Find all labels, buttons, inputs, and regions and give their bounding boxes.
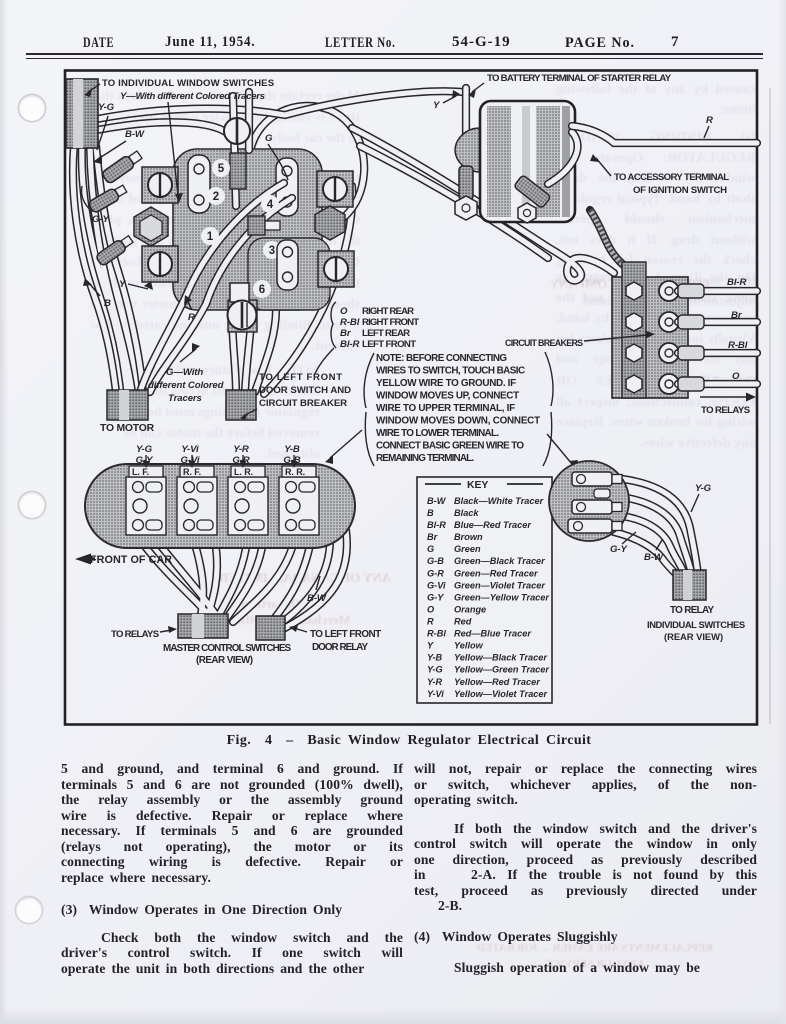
svg-text:G-R: G-R bbox=[232, 455, 249, 466]
svg-text:G-B: G-B bbox=[283, 455, 300, 466]
svg-text:R: R bbox=[706, 115, 713, 126]
svg-text:TO LEFT FRONT: TO LEFT FRONT bbox=[259, 372, 342, 383]
svg-text:G-Y: G-Y bbox=[92, 214, 110, 225]
svg-text:Br: Br bbox=[427, 532, 438, 542]
svg-text:TO BATTERY TERMINAL OF STARTER: TO BATTERY TERMINAL OF STARTER RELAY bbox=[487, 73, 672, 84]
svg-text:FRONT OF CAR: FRONT OF CAR bbox=[90, 554, 172, 566]
svg-text:Black—White Tracer: Black—White Tracer bbox=[454, 496, 544, 506]
svg-text:WIRE TO UPPER TERMINAL, IF: WIRE TO UPPER TERMINAL, IF bbox=[376, 403, 515, 414]
svg-text:G: G bbox=[427, 544, 434, 554]
svg-text:YELLOW WIRE TO GROUND. IF: YELLOW WIRE TO GROUND. IF bbox=[376, 378, 516, 389]
svg-text:L. F.: L. F. bbox=[132, 467, 149, 477]
svg-text:G-Y: G-Y bbox=[610, 544, 628, 555]
svg-text:Br: Br bbox=[340, 328, 352, 339]
svg-text:(REAR VIEW): (REAR VIEW) bbox=[196, 655, 253, 666]
svg-text:KEY: KEY bbox=[467, 479, 488, 491]
svg-text:INDIVIDUAL SWITCHES: INDIVIDUAL SWITCHES bbox=[647, 619, 745, 630]
svg-text:Y-B: Y-B bbox=[427, 653, 443, 663]
svg-text:B-W: B-W bbox=[644, 552, 664, 563]
svg-text:Green—Yellow Tracer: Green—Yellow Tracer bbox=[454, 592, 549, 602]
svg-text:G: G bbox=[265, 133, 273, 144]
svg-text:Green—Red Tracer: Green—Red Tracer bbox=[454, 568, 538, 578]
svg-text:Br: Br bbox=[731, 310, 743, 321]
svg-text:1: 1 bbox=[207, 231, 214, 243]
svg-text:Y-Vi: Y-Vi bbox=[427, 689, 444, 699]
svg-text:R-Bl: R-Bl bbox=[340, 317, 360, 328]
svg-text:(REAR VIEW): (REAR VIEW) bbox=[664, 631, 723, 642]
svg-text:DOOR SWITCH AND: DOOR SWITCH AND bbox=[259, 385, 351, 396]
svg-text:Green—Violet Tracer: Green—Violet Tracer bbox=[454, 580, 545, 590]
svg-text:Black: Black bbox=[454, 508, 479, 518]
svg-text:6: 6 bbox=[259, 284, 265, 296]
svg-text:4: 4 bbox=[267, 199, 274, 211]
svg-text:O: O bbox=[732, 371, 740, 382]
svg-text:3: 3 bbox=[269, 245, 275, 257]
svg-text:WINDOW MOVES DOWN, CONNECT: WINDOW MOVES DOWN, CONNECT bbox=[376, 416, 540, 427]
svg-text:L. R.: L. R. bbox=[234, 467, 253, 477]
svg-text:R: R bbox=[188, 312, 195, 323]
svg-text:R-Bl: R-Bl bbox=[728, 340, 748, 351]
svg-text:OF IGNITION SWITCH: OF IGNITION SWITCH bbox=[633, 185, 727, 196]
svg-text:Yellow: Yellow bbox=[454, 641, 484, 651]
svg-text:REMAINING TERMINAL.: REMAINING TERMINAL. bbox=[376, 453, 474, 464]
svg-text:Bl-R: Bl-R bbox=[727, 277, 746, 288]
svg-text:Tracers: Tracers bbox=[168, 393, 202, 404]
svg-text:TO RELAYS: TO RELAYS bbox=[111, 629, 160, 640]
svg-text:Y-R: Y-R bbox=[233, 444, 249, 455]
svg-text:R. R.: R. R. bbox=[285, 467, 305, 477]
svg-text:TO INDIVIDUAL WINDOW SWITCHES: TO INDIVIDUAL WINDOW SWITCHES bbox=[102, 78, 275, 89]
svg-text:Blue—Red Tracer: Blue—Red Tracer bbox=[454, 520, 531, 530]
svg-text:Red—Blue Tracer: Red—Blue Tracer bbox=[454, 629, 531, 639]
svg-text:NOTE: BEFORE CONNECTING: NOTE: BEFORE CONNECTING bbox=[376, 353, 507, 364]
svg-text:O: O bbox=[427, 605, 434, 615]
svg-text:Yellow—Violet Tracer: Yellow—Violet Tracer bbox=[454, 689, 548, 699]
svg-text:Y-G: Y-G bbox=[695, 483, 712, 494]
svg-text:CIRCUIT BREAKER: CIRCUIT BREAKER bbox=[259, 398, 347, 409]
svg-text:B-W: B-W bbox=[125, 129, 145, 140]
svg-text:LEFT FRONT: LEFT FRONT bbox=[362, 339, 416, 350]
svg-text:Y-G: Y-G bbox=[427, 665, 443, 675]
svg-text:WIRE TO LOWER TERMINAL.: WIRE TO LOWER TERMINAL. bbox=[376, 428, 499, 439]
svg-text:Y: Y bbox=[433, 100, 441, 111]
svg-text:5: 5 bbox=[218, 163, 225, 175]
svg-text:Y-G: Y-G bbox=[136, 444, 153, 455]
svg-text:2: 2 bbox=[213, 191, 219, 203]
svg-text:R-Bl: R-Bl bbox=[427, 629, 446, 639]
svg-text:TO MOTOR: TO MOTOR bbox=[100, 423, 155, 434]
svg-text:WIRES TO SWITCH, TOUCH BASIC: WIRES TO SWITCH, TOUCH BASIC bbox=[376, 366, 525, 377]
svg-text:Green: Green bbox=[454, 544, 481, 554]
svg-text:Yellow—Red Tracer: Yellow—Red Tracer bbox=[454, 677, 540, 687]
svg-text:Bl-R: Bl-R bbox=[427, 520, 446, 530]
svg-text:LEFT REAR: LEFT REAR bbox=[362, 328, 410, 339]
svg-text:TO LEFT FRONT: TO LEFT FRONT bbox=[310, 629, 381, 640]
svg-text:different Colored: different Colored bbox=[148, 380, 225, 391]
svg-text:G-Y: G-Y bbox=[427, 592, 444, 602]
svg-text:Bl-R: Bl-R bbox=[340, 339, 359, 350]
svg-text:G-B: G-B bbox=[427, 556, 444, 566]
svg-text:Brown: Brown bbox=[454, 532, 483, 542]
svg-text:G-Vi: G-Vi bbox=[427, 580, 446, 590]
svg-text:Yellow—Black Tracer: Yellow—Black Tracer bbox=[454, 653, 547, 663]
svg-text:G—With: G—With bbox=[166, 367, 203, 378]
svg-text:Y-Vi: Y-Vi bbox=[181, 444, 199, 455]
svg-text:DOOR RELAY: DOOR RELAY bbox=[312, 642, 369, 653]
svg-text:MASTER CONTROL SWITCHES: MASTER CONTROL SWITCHES bbox=[163, 643, 292, 654]
svg-text:B-W: B-W bbox=[307, 593, 327, 604]
svg-text:CONNECT BASIC GREEN WIRE TO: CONNECT BASIC GREEN WIRE TO bbox=[376, 441, 524, 452]
svg-text:Green—Black Tracer: Green—Black Tracer bbox=[454, 556, 545, 566]
svg-text:Y-B: Y-B bbox=[284, 444, 300, 455]
svg-text:CIRCUIT BREAKERS: CIRCUIT BREAKERS bbox=[505, 338, 583, 348]
svg-text:G-R: G-R bbox=[427, 568, 444, 578]
svg-text:Red: Red bbox=[454, 617, 472, 627]
svg-text:R: R bbox=[427, 617, 434, 627]
svg-text:B: B bbox=[427, 508, 434, 518]
svg-text:Y-R: Y-R bbox=[427, 677, 443, 687]
svg-text:WINDOW MOVES UP, CONNECT: WINDOW MOVES UP, CONNECT bbox=[376, 391, 519, 402]
svg-text:B-W: B-W bbox=[427, 496, 447, 506]
svg-text:Y-G: Y-G bbox=[98, 102, 115, 113]
svg-text:Yellow—Green Tracer: Yellow—Green Tracer bbox=[454, 665, 549, 675]
svg-text:TO RELAYS: TO RELAYS bbox=[701, 405, 751, 416]
svg-text:Y: Y bbox=[427, 641, 434, 651]
svg-text:Y—With different Colored Trace: Y—With different Colored Tracers bbox=[120, 91, 265, 102]
svg-text:R. F.: R. F. bbox=[183, 467, 201, 477]
svg-text:Orange: Orange bbox=[454, 605, 486, 615]
svg-text:B: B bbox=[104, 298, 111, 309]
svg-text:RIGHT FRONT: RIGHT FRONT bbox=[362, 317, 419, 328]
svg-text:RIGHT REAR: RIGHT REAR bbox=[362, 306, 414, 317]
svg-text:TO RELAY: TO RELAY bbox=[670, 605, 715, 616]
svg-text:O: O bbox=[340, 306, 348, 317]
svg-text:TO ACCESSORY TERMINAL: TO ACCESSORY TERMINAL bbox=[614, 172, 729, 183]
